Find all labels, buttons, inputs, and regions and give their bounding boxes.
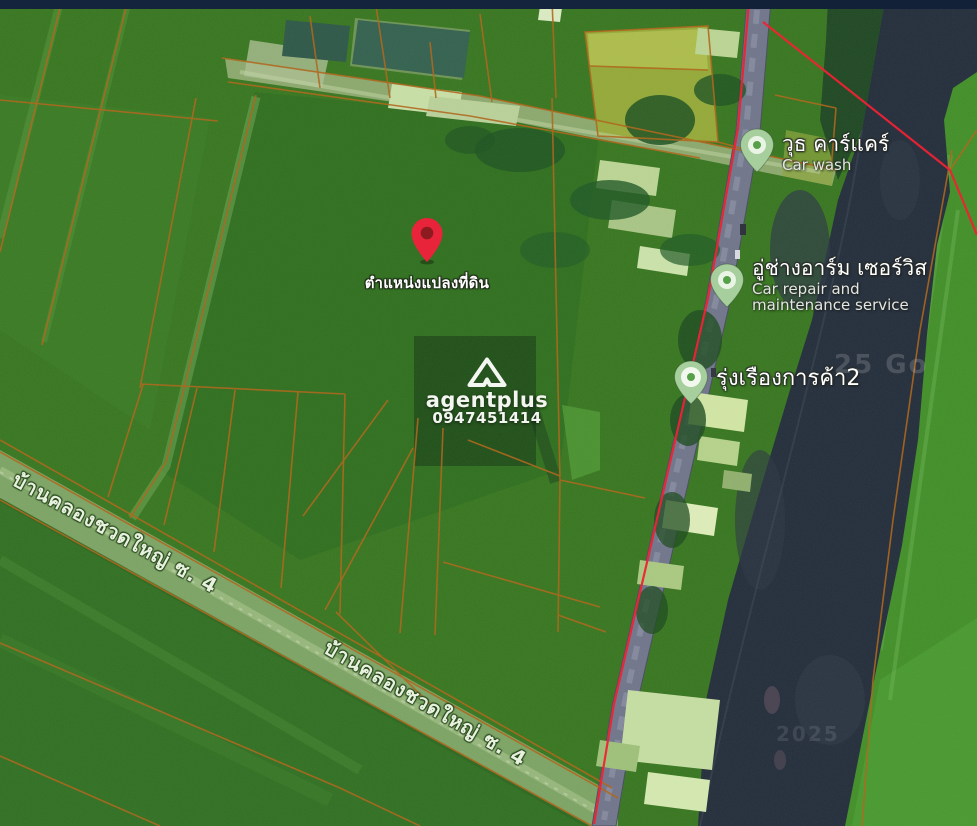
poi-car-wash[interactable]: วุธ คาร์แคร์ Car wash [736, 127, 889, 175]
watermark-brand: agentplus [412, 390, 562, 410]
poi-subtitle: Car repair and maintenance service [752, 281, 920, 313]
poi-name: อู่ช่างอาร์ม เซอร์วิส [752, 256, 927, 280]
red-pin-icon [409, 216, 445, 266]
top-edge-bar [0, 0, 977, 9]
imagery-credit-fragment: 25 Go [834, 350, 928, 380]
poi-subtitle: Car wash [782, 157, 889, 173]
poi-name: วุธ คาร์แคร์ [782, 132, 889, 156]
map-canvas[interactable]: ตำแหน่งแปลงที่ดิน agentplus 0947451414 ว… [0, 0, 977, 826]
poi-trading-shop[interactable]: รุ่งเรืองการค้า2 [670, 359, 860, 407]
place-pin-icon [736, 127, 778, 175]
place-pin-icon [706, 262, 748, 310]
agentplus-logo-icon [466, 356, 508, 388]
agency-watermark: agentplus 0947451414 [412, 356, 562, 426]
poi-car-repair[interactable]: อู่ช่างอาร์ม เซอร์วิส Car repair and mai… [706, 262, 927, 313]
watermark-phone: 0947451414 [412, 410, 562, 426]
land-plot-marker[interactable] [409, 216, 445, 266]
land-plot-label: ตำแหน่งแปลงที่ดิน [337, 271, 517, 295]
place-pin-icon [670, 359, 712, 407]
imagery-credit-fragment: 2025 [776, 722, 840, 746]
